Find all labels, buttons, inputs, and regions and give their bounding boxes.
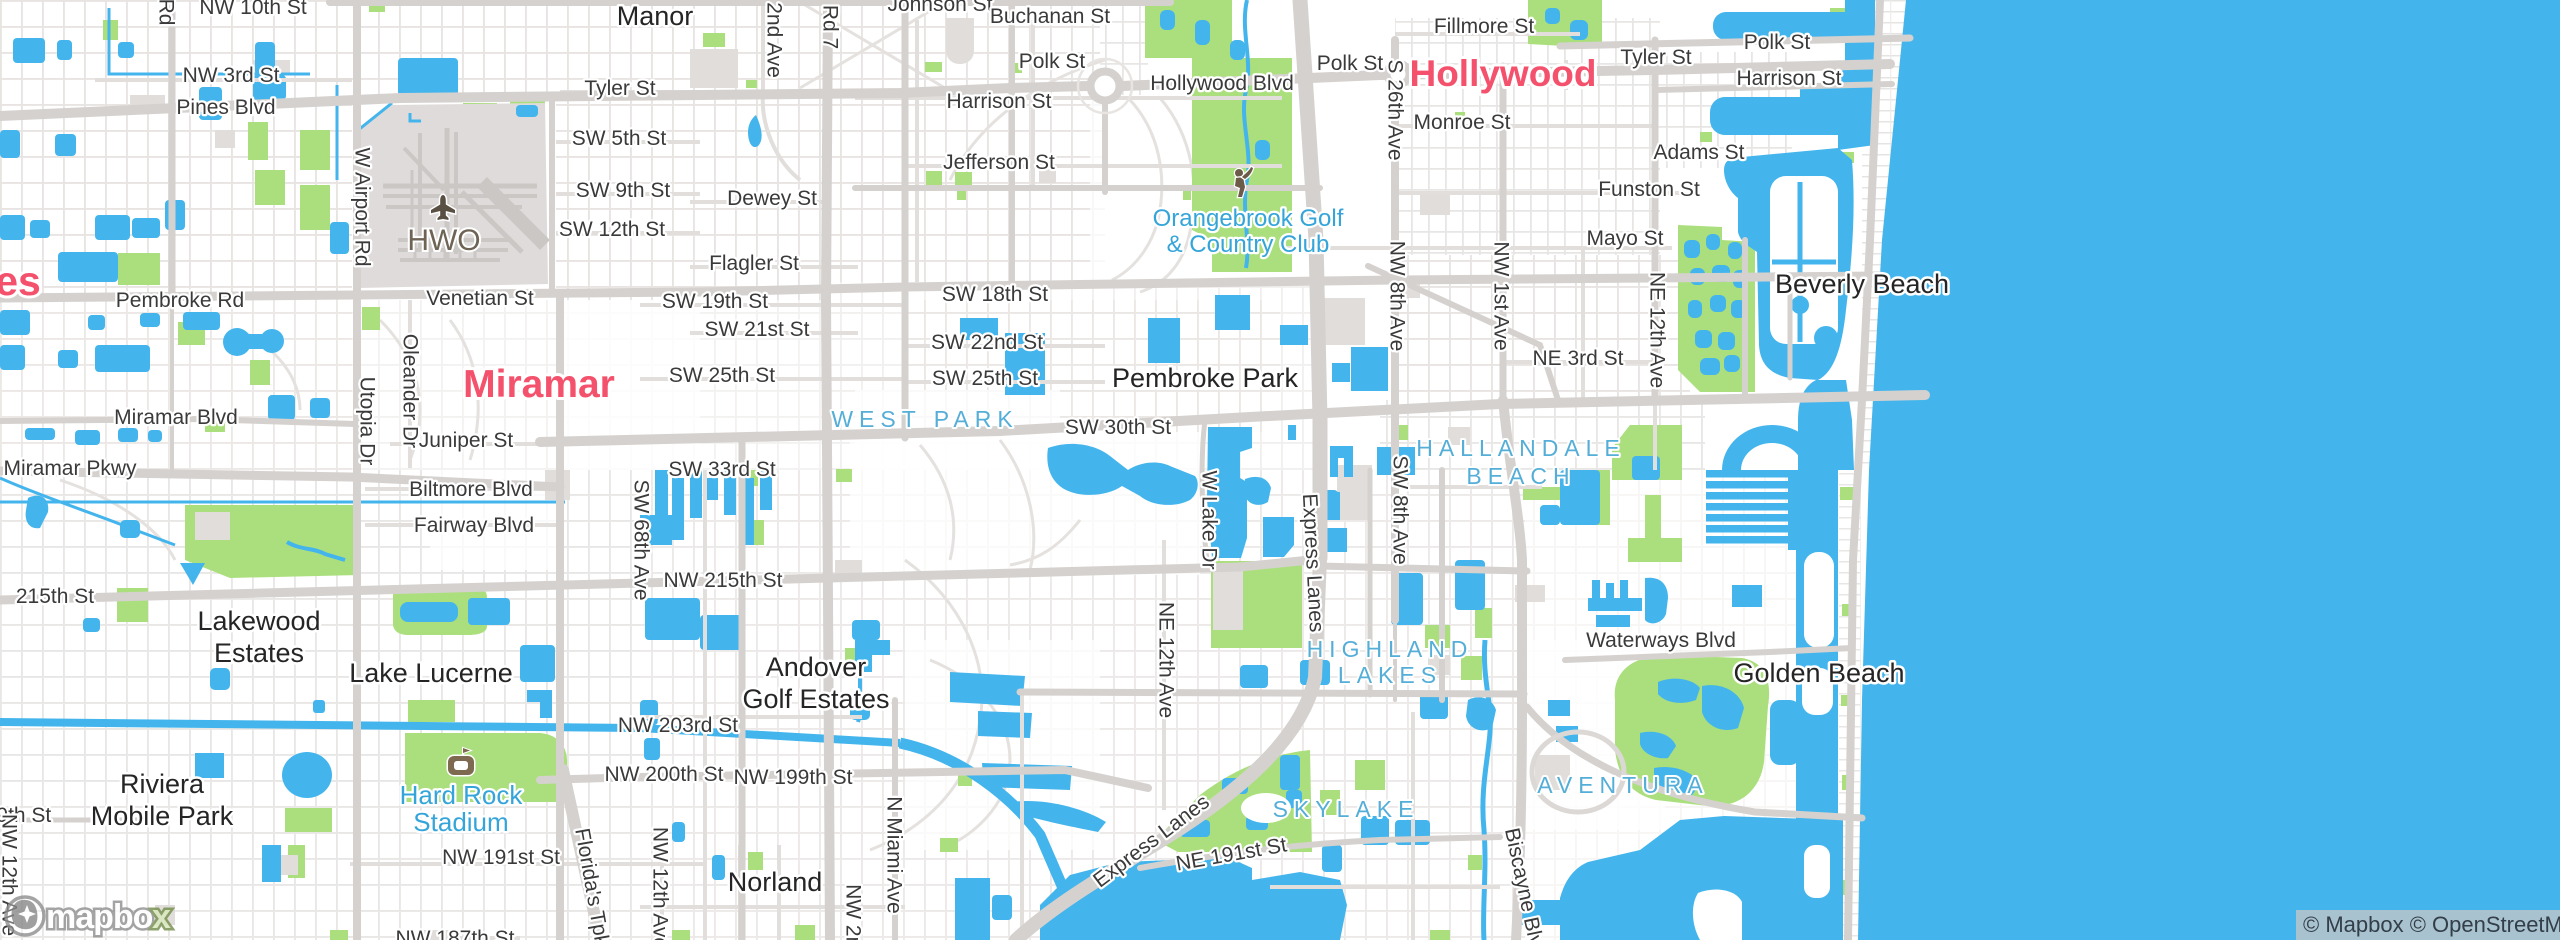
svg-text:Andover: Andover: [766, 652, 867, 682]
svg-text:Jefferson St: Jefferson St: [943, 151, 1055, 174]
svg-text:W Airport Rd: W Airport Rd: [350, 147, 373, 266]
svg-text:Biltmore Blvd: Biltmore Blvd: [409, 478, 533, 501]
svg-text:x: x: [152, 898, 171, 936]
svg-text:Pembroke Rd: Pembroke Rd: [116, 289, 244, 312]
svg-text:SW 68th Ave: SW 68th Ave: [629, 479, 652, 600]
svg-text:Harrison St: Harrison St: [946, 90, 1051, 113]
svg-text:mapbo: mapbo: [46, 898, 153, 936]
svg-text:2nd Ave: 2nd Ave: [762, 2, 785, 78]
svg-text:& Country Club: & Country Club: [1167, 231, 1330, 258]
svg-text:Golden Beach: Golden Beach: [1733, 658, 1904, 688]
svg-text:BEACH: BEACH: [1466, 463, 1575, 489]
svg-text:NE 3rd St: NE 3rd St: [1532, 347, 1623, 370]
svg-text:Lake Lucerne: Lake Lucerne: [349, 658, 513, 688]
svg-text:Harrison St: Harrison St: [1736, 67, 1841, 90]
svg-text:Rd: Rd: [154, 0, 177, 25]
svg-text:NW 187th St: NW 187th St: [395, 927, 514, 940]
svg-text:Dewey St: Dewey St: [727, 187, 817, 210]
svg-text:Golf Estates: Golf Estates: [742, 684, 889, 714]
svg-text:LAKES: LAKES: [1338, 662, 1442, 688]
svg-text:Polk St: Polk St: [1744, 31, 1811, 54]
svg-text:SW 9th St: SW 9th St: [576, 179, 671, 202]
svg-text:Orangebrook Golf: Orangebrook Golf: [1153, 205, 1344, 232]
svg-text:NW 199th St: NW 199th St: [733, 766, 852, 789]
svg-text:Beverly Beach: Beverly Beach: [1775, 269, 1949, 299]
svg-text:Fairway Blvd: Fairway Blvd: [414, 514, 534, 537]
svg-text:Adams St: Adams St: [1653, 141, 1744, 164]
svg-text:© Mapbox © OpenStreetMap: © Mapbox © OpenStreetMap: [2303, 912, 2560, 937]
svg-text:Venetian St: Venetian St: [426, 287, 534, 310]
svg-text:AVENTURA: AVENTURA: [1537, 772, 1709, 798]
svg-text:Waterways Blvd: Waterways Blvd: [1586, 629, 1736, 652]
svg-text:Mobile Park: Mobile Park: [91, 801, 234, 831]
svg-text:NW 12th Ave: NW 12th Ave: [648, 827, 671, 940]
svg-text:Hollywood: Hollywood: [1409, 53, 1596, 94]
svg-text:Tyler St: Tyler St: [1620, 46, 1691, 69]
svg-text:Polk St: Polk St: [1317, 52, 1384, 75]
svg-text:Tyler St: Tyler St: [584, 77, 655, 100]
svg-text:Hard Rock: Hard Rock: [400, 780, 524, 810]
svg-text:SW 8th Ave: SW 8th Ave: [1388, 455, 1411, 564]
svg-text:NE 12th Ave: NE 12th Ave: [1645, 272, 1668, 388]
svg-text:SW 22nd St: SW 22nd St: [931, 331, 1043, 354]
svg-text:HALLANDALE: HALLANDALE: [1416, 435, 1626, 461]
svg-text:Flagler St: Flagler St: [709, 252, 799, 275]
svg-text:HWO: HWO: [407, 224, 480, 257]
svg-text:Buchanan St: Buchanan St: [990, 5, 1110, 28]
svg-text:SW 5th St: SW 5th St: [572, 127, 667, 150]
svg-text:HIGHLAND: HIGHLAND: [1307, 636, 1474, 662]
svg-text:Pembroke Park: Pembroke Park: [1112, 363, 1299, 393]
svg-text:SW 12th St: SW 12th St: [559, 218, 665, 241]
svg-text:NW 10th St: NW 10th St: [199, 0, 307, 19]
svg-text:SW 21st St: SW 21st St: [704, 318, 809, 341]
svg-text:W Lake Dr: W Lake Dr: [1197, 470, 1220, 569]
svg-text:Stadium: Stadium: [413, 807, 508, 837]
svg-text:NW 215th St: NW 215th St: [663, 569, 782, 592]
svg-text:Oleander Dr: Oleander Dr: [398, 334, 421, 448]
svg-text:Utopia Dr: Utopia Dr: [355, 377, 378, 466]
svg-text:Mayo St: Mayo St: [1586, 227, 1663, 250]
svg-text:SW 25th St: SW 25th St: [932, 367, 1038, 390]
svg-text:SW 30th St: SW 30th St: [1065, 416, 1171, 439]
svg-text:NW 203rd St: NW 203rd St: [618, 714, 738, 737]
svg-text:Funston St: Funston St: [1598, 178, 1700, 201]
svg-text:Johnson St: Johnson St: [887, 0, 992, 16]
svg-text:Riviera: Riviera: [120, 769, 205, 799]
svg-text:Juniper St: Juniper St: [419, 429, 514, 452]
svg-text:Monroe St: Monroe St: [1414, 111, 1511, 134]
svg-text:NW 2nd: NW 2nd: [841, 884, 864, 940]
svg-text:215th St: 215th St: [16, 585, 94, 608]
svg-text:Norland: Norland: [728, 867, 823, 897]
svg-text:SW 19th St: SW 19th St: [662, 290, 768, 313]
svg-text:SW 33rd St: SW 33rd St: [668, 458, 776, 481]
svg-text:SW 25th St: SW 25th St: [669, 364, 775, 387]
svg-text:NW 191st St: NW 191st St: [442, 846, 560, 869]
svg-text:WEST PARK: WEST PARK: [831, 406, 1018, 432]
svg-text:NW 3rd St: NW 3rd St: [183, 64, 280, 87]
svg-text:N Miami Ave: N Miami Ave: [882, 796, 905, 913]
svg-text:NW 8th Ave: NW 8th Ave: [1385, 241, 1408, 352]
svg-text:Pines Blvd: Pines Blvd: [176, 96, 275, 119]
svg-text:SKYLAKE: SKYLAKE: [1273, 796, 1420, 822]
svg-text:NW 200th St: NW 200th St: [604, 763, 723, 786]
svg-text:Fillmore St: Fillmore St: [1434, 15, 1535, 38]
svg-text:Manor: Manor: [617, 1, 694, 31]
svg-text:S 26th Ave: S 26th Ave: [1383, 59, 1406, 160]
svg-text:Miramar Blvd: Miramar Blvd: [114, 406, 238, 429]
svg-text:SW 18th St: SW 18th St: [942, 283, 1048, 306]
svg-text:Lakewood: Lakewood: [197, 606, 320, 636]
svg-text:Miramar: Miramar: [463, 363, 615, 406]
svg-text:Estates: Estates: [214, 638, 304, 668]
svg-text:NE 12th Ave: NE 12th Ave: [1154, 602, 1177, 718]
svg-text:Miramar Pkwy: Miramar Pkwy: [3, 457, 137, 480]
svg-text:es: es: [0, 258, 41, 304]
svg-text:Hollywood Blvd: Hollywood Blvd: [1150, 72, 1294, 95]
svg-text:NW 1st Ave: NW 1st Ave: [1489, 241, 1512, 350]
svg-text:Rd 7: Rd 7: [818, 5, 841, 49]
svg-text:Polk St: Polk St: [1019, 50, 1086, 73]
